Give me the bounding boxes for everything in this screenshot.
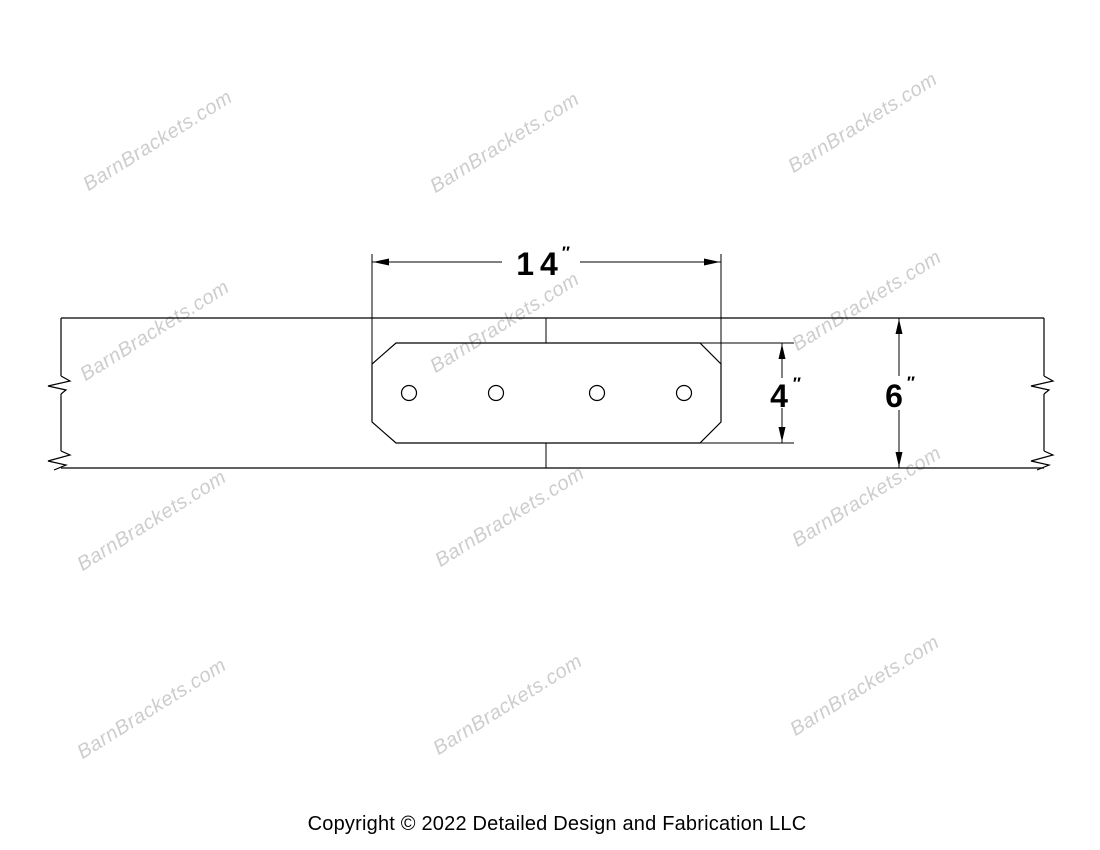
- arrowhead-down: [779, 427, 786, 442]
- bolt-hole-3: [590, 386, 605, 401]
- arrowhead-right: [704, 259, 720, 266]
- dimension-value-beam-height: 6: [885, 378, 903, 414]
- copyright-text: Copyright © 2022 Detailed Design and Fab…: [308, 813, 807, 835]
- bracket-plate: [372, 343, 721, 443]
- watermark: BarnBrackets.com: [784, 68, 941, 177]
- watermark: BarnBrackets.com: [76, 276, 233, 385]
- watermark: BarnBrackets.com: [426, 88, 583, 197]
- arrowhead-up: [779, 344, 786, 359]
- dimension-unit-beam-height: ″: [907, 373, 915, 392]
- break-symbol-right-mid: [1031, 376, 1053, 394]
- watermark: BarnBrackets.com: [788, 442, 945, 551]
- bolt-hole-2: [489, 386, 504, 401]
- watermark: BarnBrackets.com: [426, 268, 583, 377]
- watermark: BarnBrackets.com: [786, 631, 943, 740]
- break-symbol-right-bottom: [1031, 451, 1053, 470]
- watermark: BarnBrackets.com: [79, 86, 236, 195]
- dimension-beam-height: 6 ″: [885, 318, 915, 468]
- arrowhead-up: [896, 319, 903, 334]
- bolt-hole-4: [677, 386, 692, 401]
- watermark: BarnBrackets.com: [73, 654, 230, 763]
- watermark: BarnBrackets.com: [788, 246, 945, 355]
- break-symbol-left-bottom: [48, 451, 70, 470]
- watermark-layer: BarnBrackets.com BarnBrackets.com BarnBr…: [73, 68, 945, 763]
- dimension-value-plate-width: 14: [516, 246, 564, 282]
- dimension-unit-plate-width: ″: [562, 243, 570, 262]
- drawing-canvas: BarnBrackets.com BarnBrackets.com BarnBr…: [0, 0, 1100, 850]
- arrowhead-left: [373, 259, 389, 266]
- technical-drawing: BarnBrackets.com BarnBrackets.com BarnBr…: [0, 0, 1100, 850]
- plate-outline: [372, 343, 721, 443]
- bolt-hole-1: [402, 386, 417, 401]
- break-symbol-left-mid: [48, 376, 70, 394]
- watermark: BarnBrackets.com: [429, 650, 586, 759]
- dimension-value-plate-height: 4: [770, 378, 788, 414]
- watermark: BarnBrackets.com: [73, 466, 230, 575]
- watermark: BarnBrackets.com: [431, 462, 588, 571]
- dimension-unit-plate-height: ″: [793, 374, 801, 393]
